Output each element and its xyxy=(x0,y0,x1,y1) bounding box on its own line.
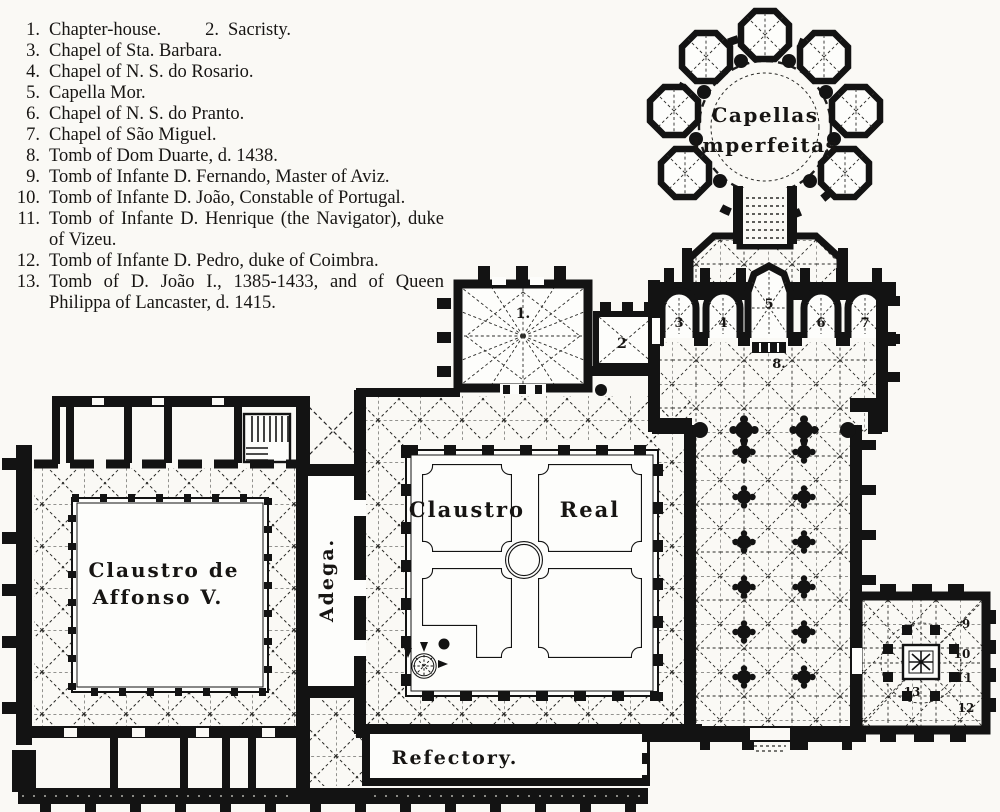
rotunda-label-line1: Capellas xyxy=(712,103,819,127)
chapel-7-number: 7 xyxy=(860,316,869,331)
number-9: 9 xyxy=(962,617,970,631)
claustro-affonso: Claustro de Affonso V. xyxy=(72,498,268,692)
claustro-affonso-label-1: Claustro de xyxy=(88,558,239,582)
number-10: 10 xyxy=(954,647,971,661)
scanned-plan-page: 1. Chapter-house.2.Sacristy. 3. Chapel o… xyxy=(0,0,1000,812)
winding-stair xyxy=(595,384,607,396)
rotunda-label-line2: Imperfeitas xyxy=(692,133,839,157)
claustro-real-label-2: Real xyxy=(560,497,620,522)
chapter-house-door-piers xyxy=(503,385,542,394)
capellas-imperfeitas-rotunda: Capellas Imperfeitas xyxy=(650,11,880,244)
tomb-8-number: 8. xyxy=(772,357,786,372)
adega-label: Adega. xyxy=(316,538,338,623)
staircase xyxy=(244,414,290,462)
chapel-5-number: 5 xyxy=(764,297,773,312)
refectory: Refectory. xyxy=(366,730,647,782)
founder-chapel-door xyxy=(852,648,862,674)
sacristy-entrance-piers xyxy=(600,302,653,312)
floor-plan-svg: Capellas Imperfeitas xyxy=(0,0,1000,812)
number-11: 11 xyxy=(956,671,973,685)
chapel-4-number: 4 xyxy=(718,316,727,331)
south-wall-buttresses xyxy=(40,804,636,812)
claustro-real-label-1: Claustro xyxy=(409,497,525,522)
chapter-house: 1. xyxy=(437,266,588,394)
claustro-real: Claustro Real xyxy=(404,450,658,696)
chapel-6-number: 6 xyxy=(816,316,825,331)
claustro-affonso-label-2: Affonso V. xyxy=(92,585,224,609)
sacristy-number: 2 xyxy=(617,336,627,352)
north-rooms xyxy=(34,396,304,464)
tomb-joao-philippa xyxy=(903,645,939,679)
number-13: 13 xyxy=(904,685,921,699)
chapel-3-number: 3 xyxy=(674,316,683,331)
chapter-house-number: 1. xyxy=(516,306,531,322)
refectory-label: Refectory. xyxy=(392,747,519,769)
number-12: 12 xyxy=(958,701,975,715)
rotunda-entrance-corridor xyxy=(733,186,797,244)
